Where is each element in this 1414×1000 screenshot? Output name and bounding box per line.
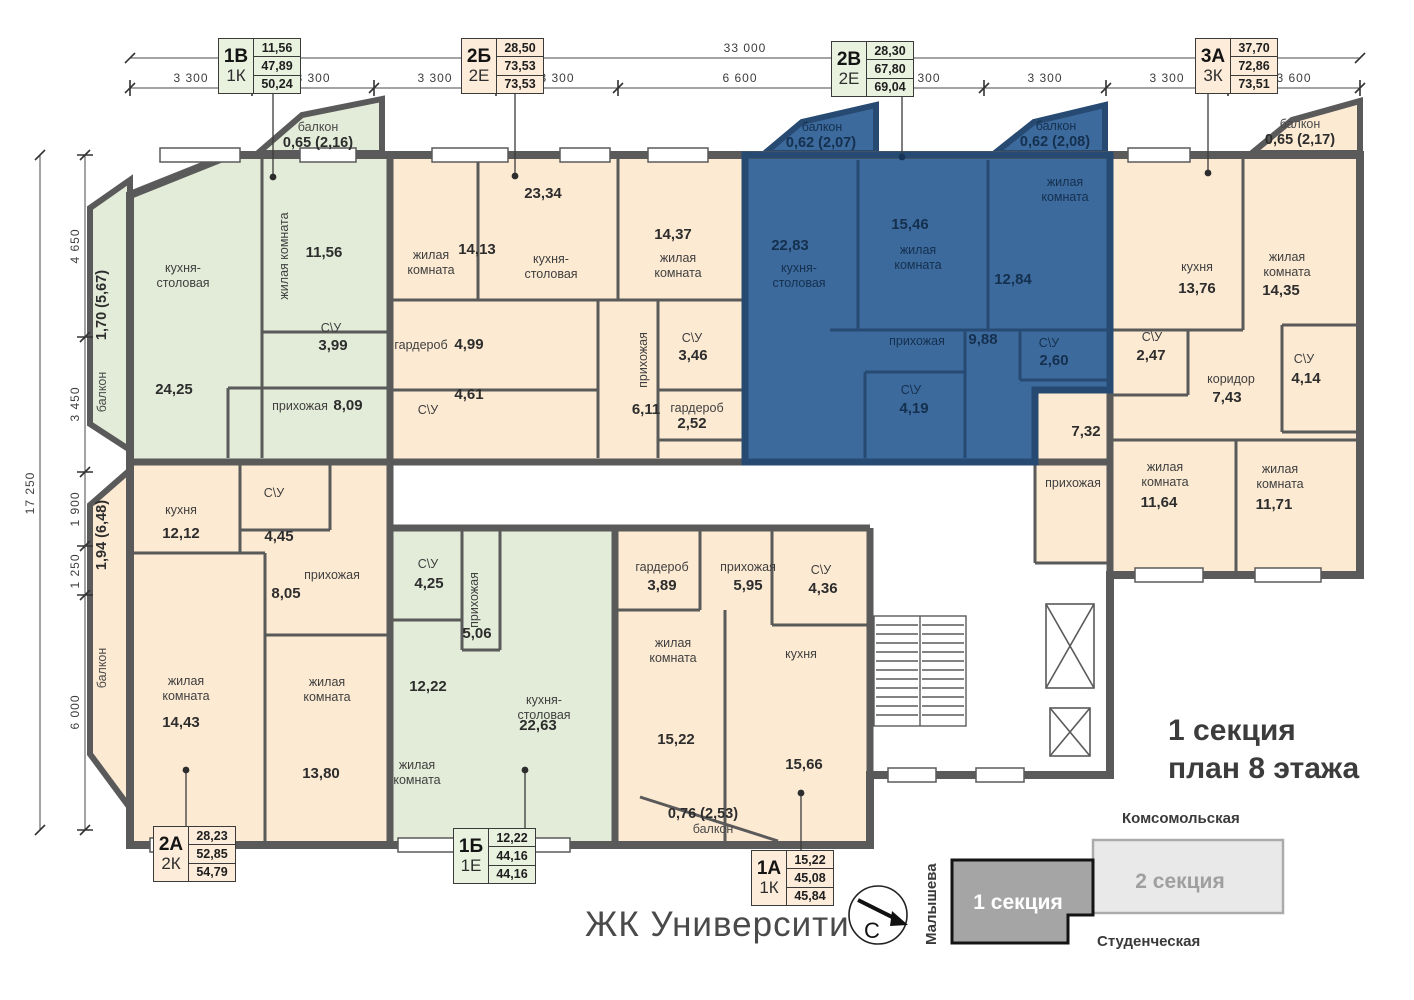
room-name-r3a_su1: С\У: [1142, 330, 1163, 344]
apt-value: 11,56: [254, 39, 300, 56]
balcony-value-bal_2a_side: 1,94 (6,48): [94, 500, 110, 570]
room-name-r1v_hall: прихожая: [272, 399, 328, 413]
apartment-card-3a[interactable]: 3А3К 37,70 72,86 73,51: [1195, 38, 1278, 94]
apt-value: 69,04: [867, 78, 913, 96]
dim-top-seg-7: 3 300: [1149, 71, 1184, 85]
street-malysheva: Малышева: [923, 863, 940, 945]
room-name-r1b_living: жилаякомната: [393, 758, 440, 787]
apt-value: 37,70: [1231, 39, 1277, 56]
room-area-r2b_living2: 14,37: [654, 226, 692, 243]
room-name-r2a_living2: жилаякомната: [303, 675, 350, 704]
balcony-value-bal_2v_left: 0,62 (2,07): [786, 135, 856, 151]
page-title-line1: 1 секция: [1168, 712, 1359, 750]
staircase: [874, 616, 966, 726]
room-area-r1b_kitchen: 22,63: [519, 717, 557, 734]
room-name-r2b_su1: С\У: [418, 403, 439, 417]
dim-left-seg-3: 1 250: [68, 553, 82, 588]
room-name-r2v_living1: жилаякомната: [894, 243, 941, 272]
dim-left-seg-4: 6 000: [68, 694, 82, 729]
room-name-r3a_corr: коридор: [1207, 372, 1255, 386]
room-name-r3a_living1: жилаякомната: [1263, 250, 1310, 279]
room-area-r2v_living1: 15,46: [891, 216, 929, 233]
room-area-r1b_living: 12,22: [409, 678, 447, 695]
apt-subtype: 1К: [759, 879, 778, 897]
apt-value: 73,53: [497, 75, 543, 93]
room-name-r1v_living: жилая комната: [277, 212, 291, 299]
room-area-r1v_kitchen: 24,25: [155, 381, 193, 398]
room-area-r3a_living1: 14,35: [1262, 282, 1300, 299]
balcony-name-bal_2v_left: балкон: [802, 120, 843, 134]
room-area-r2a_living1: 14,43: [162, 714, 200, 731]
apt-type: 2Б: [467, 47, 491, 67]
room-name-r2b_ward2: гардероб: [670, 401, 723, 415]
apt-value: 44,16: [489, 865, 535, 883]
apt-type: 1А: [757, 859, 781, 879]
room-name-r1a_kitchen: кухня: [785, 647, 817, 661]
dim-top-seg-2: 3 300: [417, 71, 452, 85]
room-area-r2v_living2: 12,84: [994, 271, 1032, 288]
room-name-r3a_hall: прихожая: [1045, 476, 1101, 490]
balcony-name-bal_1v_top: балкон: [298, 120, 339, 134]
room-area-r2v_su2: 2,60: [1039, 352, 1068, 369]
room-area-r3a_corr: 7,43: [1212, 389, 1241, 406]
minimap: Комсомольская 2 секция 1 секция Студенче…: [923, 810, 1283, 950]
apt-type: 2В: [837, 50, 861, 70]
balcony-value-bal_2v_right: 0,62 (2,08): [1020, 134, 1090, 150]
dim-top-seg-8: 3 600: [1276, 71, 1311, 85]
room-area-r1a_su: 4,36: [808, 580, 837, 597]
apt-subtype: 3К: [1203, 67, 1222, 85]
room-area-r2b_living1: 14,13: [458, 241, 496, 258]
room-area-r3a_kitchen: 13,76: [1178, 280, 1216, 297]
dim-left-seg-0: 4 650: [68, 228, 82, 263]
dim-left-seg-1: 3 450: [68, 386, 82, 421]
room-area-r1a_ward: 3,89: [647, 577, 676, 594]
dim-top-seg-4: 6 600: [722, 71, 757, 85]
apt-value: 28,30: [867, 42, 913, 59]
apt-subtype: 2Е: [839, 70, 860, 88]
apt-type: 1В: [224, 47, 248, 67]
apt-value: 52,85: [189, 844, 235, 862]
apt-value: 28,50: [497, 39, 543, 56]
street-komsomolskaya: Комсомольская: [1122, 810, 1240, 827]
compass-icon: С: [849, 886, 908, 944]
balcony-value-bal_1v_side: 1,70 (5,67): [94, 270, 110, 340]
room-name-r2a_su: С\У: [264, 486, 285, 500]
apt-value: 47,89: [254, 56, 300, 74]
room-name-r2v_hall: прихожая: [889, 334, 945, 348]
room-area-r1a_kitchen: 15,66: [785, 756, 823, 773]
apt-value: 44,16: [489, 846, 535, 864]
room-name-r2v_su2: С\У: [1039, 336, 1060, 350]
room-area-r2b_ward2: 2,52: [677, 415, 706, 432]
room-name-r1a_living: жилаякомната: [649, 636, 696, 665]
apt-value: 15,22: [787, 851, 833, 868]
room-name-r2a_kitchen: кухня: [165, 503, 197, 517]
room-name-r1b_su: С\У: [418, 557, 439, 571]
room-name-r3a_kitchen: кухня: [1181, 260, 1213, 274]
room-area-r2a_kitchen: 12,12: [162, 525, 200, 542]
room-area-r2v_su1: 4,19: [899, 400, 928, 417]
room-area-r2a_hall: 8,05: [271, 585, 300, 602]
room-area-r2a_living2: 13,80: [302, 765, 340, 782]
apt-value: 67,80: [867, 59, 913, 77]
room-name-r2v_su1: С\У: [901, 383, 922, 397]
room-name-r1v_su: С\У: [321, 321, 342, 335]
apt-type: 1Б: [459, 837, 483, 857]
apt-value: 73,53: [497, 56, 543, 74]
apt-value: 72,86: [1231, 56, 1277, 74]
minimap-section2-label: 2 секция: [1135, 870, 1224, 893]
dim-left-total: 17 250: [23, 472, 37, 515]
page-title-line2: план 8 этажа: [1168, 750, 1359, 788]
balcony-name-bal_2a_side: балкон: [95, 648, 109, 689]
apartment-card-2v[interactable]: 2В2Е 28,30 67,80 69,04: [831, 41, 914, 97]
room-name-r3a_su2: С\У: [1294, 352, 1315, 366]
apartment-card-2b[interactable]: 2Б2Е 28,50 73,53 73,53: [461, 38, 544, 94]
room-name-r1a_hall: прихожая: [720, 560, 776, 574]
apartment-card-1a[interactable]: 1А1К 15,22 45,08 45,84: [751, 850, 834, 906]
apt-value: 28,23: [189, 827, 235, 844]
apt-value: 45,08: [787, 868, 833, 886]
room-name-r3a_living3: жилаякомната: [1256, 462, 1303, 491]
apartment-2a-area[interactable]: [130, 462, 390, 845]
apt-subtype: 1Е: [461, 857, 482, 875]
page-title: 1 секция план 8 этажа: [1168, 712, 1359, 788]
floor-plan-page: Комсомольская 2 секция 1 секция Студенче…: [0, 0, 1414, 1000]
room-name-r1b_hall: прихожая: [467, 572, 481, 628]
apt-subtype: 1К: [226, 67, 245, 85]
apartment-card-1b[interactable]: 1Б1Е 12,22 44,16 44,16: [453, 828, 536, 884]
room-area-r2b_su1: 4,61: [454, 386, 483, 403]
apt-value: 54,79: [189, 863, 235, 881]
dim-top-seg-6: 3 300: [1027, 71, 1062, 85]
apt-subtype: 2Е: [469, 67, 490, 85]
room-name-r1a_ward: гардероб: [635, 560, 688, 574]
room-area-r2v_hall: 9,88: [968, 331, 997, 348]
room-name-r2b_living1: жилаякомната: [407, 248, 454, 277]
room-area-r2b_hall: 6,11: [632, 401, 660, 418]
room-name-r1a_su: С\У: [811, 563, 832, 577]
elevator-shafts: [1046, 604, 1094, 756]
room-area-r2v_kitchen: 22,83: [771, 237, 809, 254]
minimap-section1-label: 1 секция: [973, 891, 1062, 914]
room-area-r3a_living3: 11,71: [1256, 496, 1293, 513]
apt-type: 3А: [1201, 47, 1225, 67]
room-area-r1v_living: 11,56: [306, 244, 343, 261]
room-name-r2b_living2: жилаякомната: [654, 251, 701, 280]
dim-top-seg-3: 3 300: [539, 71, 574, 85]
apt-value: 73,51: [1231, 75, 1277, 93]
apartment-1a-area[interactable]: [615, 528, 870, 845]
dim-top-total: 33 000: [724, 41, 767, 55]
room-area-r3a_su1: 2,47: [1136, 347, 1165, 364]
apt-subtype: 2К: [161, 855, 180, 873]
room-area-r1v_hall: 8,09: [333, 397, 362, 414]
balcony-name-bal_1v_side: балкон: [95, 372, 109, 413]
room-area-r2b_kitchen: 23,34: [524, 185, 562, 202]
room-area-r1a_hall: 5,95: [733, 577, 762, 594]
compass-north-letter: С: [864, 918, 880, 943]
dim-left-seg-2: 1 900: [68, 491, 82, 526]
room-name-r2v_living2: жилаякомната: [1041, 175, 1088, 204]
room-name-r2b_ward1: гардероб: [394, 338, 447, 352]
apt-type: 2А: [159, 835, 183, 855]
balcony-name-bal_1a_bottom: балкон: [693, 822, 734, 836]
room-name-r2b_hall: прихожая: [636, 332, 650, 388]
apartment-card-2a[interactable]: 2А2К 28,23 52,85 54,79: [153, 826, 236, 882]
dim-top-seg-0: 3 300: [173, 71, 208, 85]
room-area-r1b_hall: 5,06: [462, 625, 491, 642]
room-area-r1b_su: 4,25: [414, 575, 443, 592]
balcony-value-bal_3a_top: 0,65 (2,17): [1265, 132, 1335, 148]
room-name-r3a_living2: жилаякомната: [1141, 460, 1188, 489]
room-area-r3a_su2: 4,14: [1291, 370, 1321, 387]
complex-logo: ЖК Университи: [585, 905, 850, 945]
room-name-r2b_su2: С\У: [682, 331, 703, 345]
room-area-r2b_su2: 3,46: [678, 347, 707, 364]
balcony-name-bal_2v_right: балкон: [1036, 119, 1077, 133]
apartment-card-1v[interactable]: 1В1К 11,56 47,89 50,24: [218, 38, 301, 94]
street-studencheskaya: Студенческая: [1097, 933, 1200, 950]
room-area-r1v_su: 3,99: [318, 337, 347, 354]
apartment-1v-area[interactable]: [130, 155, 390, 462]
balcony-name-bal_3a_top: балкон: [1280, 117, 1321, 131]
balcony-value-bal_1v_top: 0,65 (2,16): [283, 135, 353, 151]
room-area-r1a_living: 15,22: [657, 731, 695, 748]
common-corridor-area: [390, 462, 870, 528]
apt-value: 12,22: [489, 829, 535, 846]
room-area-r3a_hall: 7,32: [1071, 423, 1100, 440]
room-area-r2b_ward1: 4,99: [454, 336, 483, 353]
room-name-r2a_hall: прихожая: [304, 568, 360, 582]
apt-value: 45,84: [787, 887, 833, 905]
room-name-r2a_living1: жилаякомната: [162, 674, 209, 703]
apt-value: 50,24: [254, 75, 300, 93]
balcony-value-bal_1a_bottom: 0,76 (2,53): [668, 806, 738, 822]
room-area-r2a_su: 4,45: [264, 528, 293, 545]
room-area-r3a_living2: 11,64: [1141, 494, 1178, 511]
